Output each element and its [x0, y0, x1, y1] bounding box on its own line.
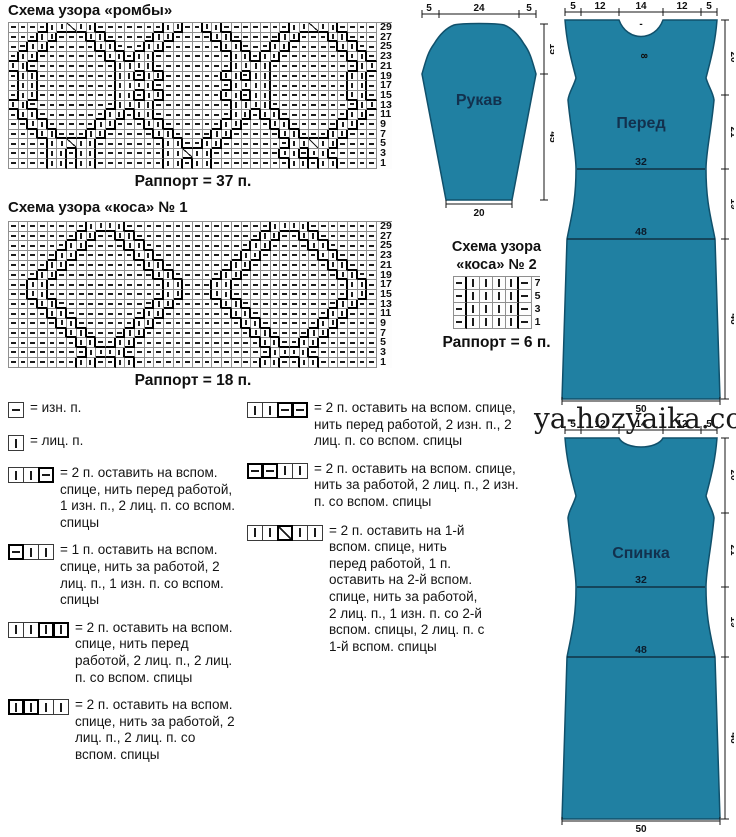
cable-symbol-icon — [247, 402, 307, 418]
legend-text: = 2 п. оставить на вспом. спице, нить пе… — [75, 620, 240, 686]
legend-text: = лиц. п. — [30, 433, 83, 450]
front-neck-dash: - — [639, 19, 642, 30]
front-dim-top-4: 12 — [676, 1, 688, 12]
diamond-chart-rapport: Раппорт = 37 п. — [8, 173, 378, 191]
back-dim-hip-drop: 19 — [728, 616, 734, 628]
front-dim-hip-drop: 19 — [728, 198, 734, 210]
legend-text: = изн. п. — [30, 400, 81, 417]
sleeve-dim-top-right: 5 — [526, 3, 532, 14]
front-dim-armhole: 20 — [728, 51, 734, 63]
legend-item-cable-5st: = 2 п. оставить на 1-й вспом. спице, нит… — [247, 523, 547, 656]
back-dim-skirt: 46 — [728, 732, 734, 744]
legend-text: = 2 п. оставить на вспом. спице, нить пе… — [60, 465, 238, 531]
legend-text: = 2 п. оставить на вспом. спице, нить за… — [314, 461, 532, 511]
back-dim-bodice: 21 — [728, 544, 734, 556]
front-piece-diagram: 5 12 14 12 5 - 8 32 48 20 21 19 46 50 Пе… — [548, 0, 734, 414]
knitting-pattern-page: Схема узора «ромбы» 29272523211917151311… — [0, 0, 736, 837]
back-dim-bottom: 50 — [635, 824, 647, 835]
legend-item-cable-3st-back: = 1 п. оставить на вспом. спице, нить за… — [8, 542, 244, 608]
cable-symbol-icon — [8, 467, 53, 483]
purl-symbol-icon — [8, 402, 23, 418]
legend-left-column: = изн. п. = лиц. п. = 2 п. оставить на в… — [8, 400, 244, 775]
legend-middle-column: = 2 п. оставить на вспом. спице, нить пе… — [247, 400, 547, 666]
front-shape — [562, 20, 720, 399]
legend-item-cable-4st-back: = 2 п. оставить на вспом. спице, нить за… — [8, 697, 244, 763]
cable-symbol-icon — [8, 544, 53, 560]
legend-item-purl: = изн. п. — [8, 400, 244, 418]
front-dim-skirt: 46 — [728, 313, 734, 325]
front-label: Перед — [616, 115, 665, 132]
knit-symbol-icon — [8, 435, 23, 451]
cable2-chart-grid: 7531 — [453, 276, 541, 329]
legend-item-cable-3st-front: = 2 п. оставить на вспом. спице, нить пе… — [8, 465, 244, 531]
sleeve-dim-bottom: 20 — [473, 208, 485, 218]
legend-text: = 2 п. оставить на 1-й вспом. спице, нит… — [329, 523, 487, 656]
front-dim-top-3: 14 — [635, 1, 647, 12]
back-right-dimension-line — [721, 438, 729, 819]
cable1-chart-grid: 2927252321191715131197531 — [8, 221, 392, 368]
sleeve-piece-diagram: 5 24 5 15 45 20 Рукав — [404, 2, 554, 218]
back-waist-width: 32 — [635, 574, 647, 586]
back-dim-armhole: 20 — [728, 469, 734, 481]
sleeve-shape — [422, 24, 536, 201]
front-dim-top-1: 5 — [570, 1, 576, 12]
diamond-chart-grid: 2927252321191715131197531 — [8, 22, 392, 169]
front-dim-top-5: 5 — [706, 1, 712, 12]
legend-item-cable-purl-back: = 2 п. оставить на вспом. спице, нить за… — [247, 461, 547, 511]
back-piece-diagram: 5 12 14 12 5 32 48 20 21 19 46 50 Спинка — [548, 416, 734, 837]
legend-text: = 1 п. оставить на вспом. спице, нить за… — [60, 542, 238, 608]
cable-symbol-icon — [247, 525, 322, 541]
sleeve-dim-top-center: 24 — [473, 3, 485, 14]
cable-symbol-icon — [247, 463, 307, 479]
front-waist-width: 32 — [635, 156, 647, 168]
front-dim-bodice: 21 — [728, 126, 734, 138]
cable-symbol-icon — [8, 699, 68, 715]
back-hip-width: 48 — [635, 644, 647, 656]
watermark-text: ya-hozyaika.com — [534, 402, 736, 435]
cable-symbol-icon — [8, 622, 68, 638]
sleeve-right-dimension-line — [540, 24, 548, 200]
cable1-chart-title: Схема узора «коса» № 1 — [8, 199, 188, 216]
front-hip-width: 48 — [635, 226, 647, 238]
sleeve-bottom-dimension-line — [446, 200, 512, 208]
legend-item-knit: = лиц. п. — [8, 433, 244, 451]
legend-item-cable-4st-front: = 2 п. оставить на вспом. спице, нить пе… — [8, 620, 244, 686]
front-dim-top-2: 12 — [594, 1, 606, 12]
diamond-chart-title: Схема узора «ромбы» — [8, 2, 172, 19]
back-label: Спинка — [612, 545, 670, 562]
legend-text: = 2 п. оставить на вспом. спице, нить пе… — [314, 400, 532, 450]
legend-item-cable-purl-front: = 2 п. оставить на вспом. спице, нить пе… — [247, 400, 547, 450]
sleeve-label: Рукав — [456, 92, 502, 109]
cable1-chart-rapport: Раппорт = 18 п. — [8, 372, 378, 390]
front-neck-depth: 8 — [639, 53, 649, 58]
back-shape — [562, 438, 720, 819]
legend-text: = 2 п. оставить на вспом. спице, нить за… — [75, 697, 240, 763]
sleeve-dim-top-left: 5 — [426, 3, 432, 14]
front-right-dimension-line — [721, 20, 729, 399]
